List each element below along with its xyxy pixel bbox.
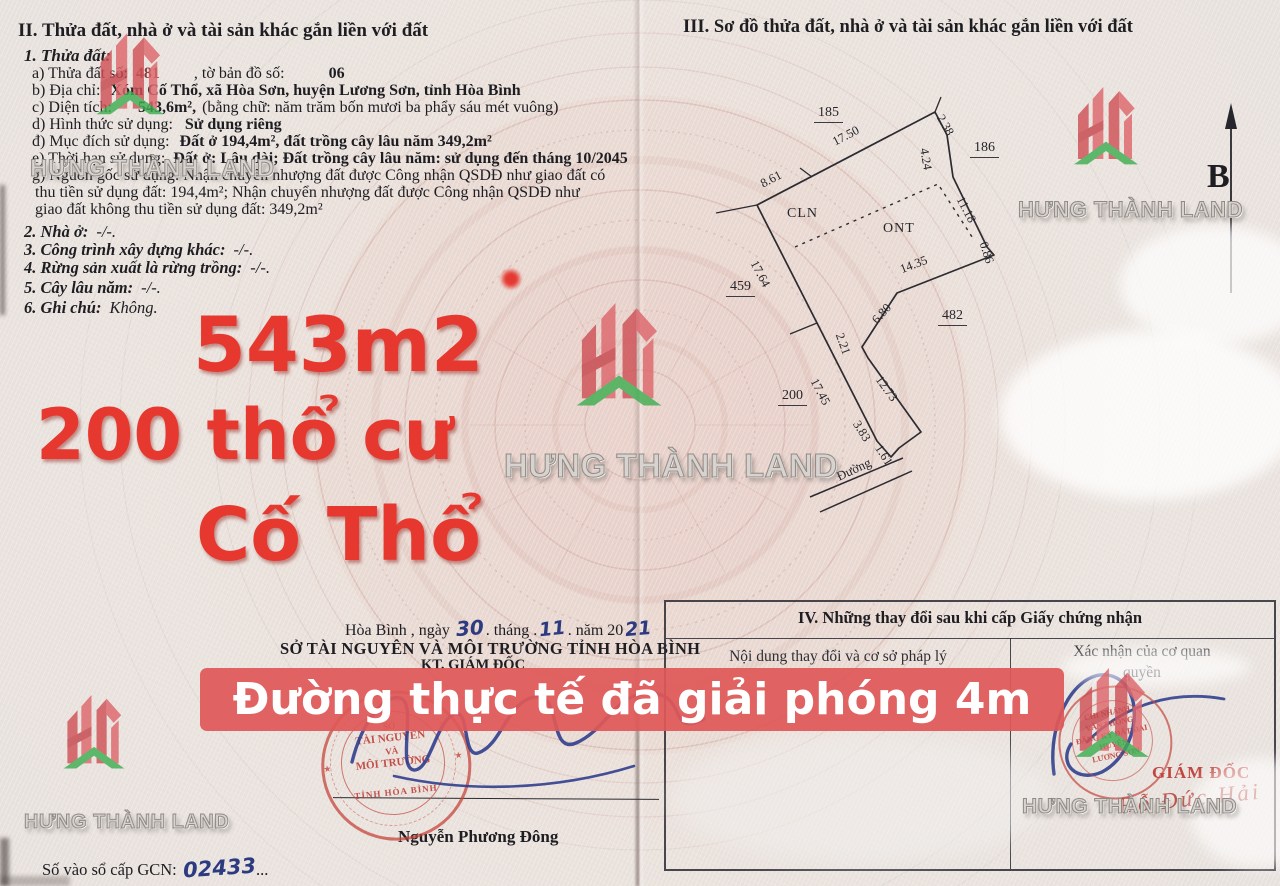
serial-suffix: ... xyxy=(256,860,268,879)
zone-label-cln: CLN xyxy=(787,206,818,222)
photo-edge-mark xyxy=(0,185,5,315)
stamp-star-left-icon: ★ xyxy=(323,764,332,776)
other-construction-value: -/-. xyxy=(234,240,254,259)
blur-patch xyxy=(672,733,1052,863)
stamp-star-right-icon: ★ xyxy=(454,750,463,762)
brand-name: HƯNG THÀNH LAND xyxy=(504,447,838,485)
use-origin-text2: thu tiền sử dụng đất: 194,4m²; Nhận chuy… xyxy=(35,184,580,201)
handwritten-year: 21 xyxy=(624,617,652,641)
brand-name: HƯNG THÀNH LAND xyxy=(24,811,229,834)
brand-name: HƯNG THÀNH LAND xyxy=(30,155,275,183)
neighbor-parcel-482: 482 xyxy=(938,308,967,326)
handwritten-month: 11 xyxy=(538,617,567,642)
house-value: -/-. xyxy=(96,222,116,241)
brand-building-icon xyxy=(1066,80,1146,174)
table-iv-col1-header: Nội dung thay đổi và cơ sở pháp lý xyxy=(666,648,1010,666)
brand-building-icon xyxy=(88,26,172,124)
house-label: 2. Nhà ở: xyxy=(24,222,88,241)
perennial-line: 5. Cây lâu năm:-/-. xyxy=(24,278,161,298)
serial-line: Số vào sổ cấp GCN: 02433... xyxy=(42,856,268,880)
overlay-residential-text: 200 thổ cư xyxy=(36,394,454,476)
handwritten-day: 30 xyxy=(455,615,484,641)
brand-building-icon xyxy=(56,688,132,778)
section3-title: III. Sơ đồ thửa đất, nhà ở và tài sản kh… xyxy=(683,17,1133,38)
perennial-value: -/-. xyxy=(141,278,161,297)
watermark-top-left: HƯNG THÀNH LAND xyxy=(30,26,275,183)
red-dot-mark xyxy=(500,268,522,290)
watermark-bottom-left: HƯNG THÀNH LAND xyxy=(24,688,229,834)
perennial-label: 5. Cây lâu năm: xyxy=(24,278,133,297)
use-origin-line3: giao đất không thu tiền sử dụng đất: 349… xyxy=(35,201,323,219)
notes-label: 6. Ghi chú: xyxy=(24,298,101,317)
table-iv-title: IV. Những thay đổi sau khi cấp Giấy chứn… xyxy=(666,608,1274,628)
zone-label-ont: ONT xyxy=(883,221,915,237)
serial-label: Số vào sổ cấp GCN: xyxy=(42,860,177,879)
house-line: 2. Nhà ở:-/-. xyxy=(24,222,116,242)
date-infix2: . năm 20 xyxy=(568,622,624,639)
overlay-area-text: 543m2 xyxy=(193,300,484,389)
brand-name: HƯNG THÀNH LAND xyxy=(1022,795,1237,819)
neighbor-parcel-186: 186 xyxy=(970,140,999,158)
place-date-line: Hòa Bình , ngày 30. tháng .11. năm 2021 xyxy=(345,616,652,640)
watermark-top-right: HƯNG THÀNH LAND xyxy=(1018,80,1243,223)
blur-patch xyxy=(1000,330,1280,500)
overlay-hamlet-text: Cố Thổ xyxy=(196,492,481,578)
handwritten-serial: 02433 xyxy=(182,853,257,882)
table-iv-header-divider xyxy=(666,638,1274,639)
other-construction-line: 3. Công trình xây dựng khác:-/-. xyxy=(24,240,253,260)
map-sheet-value: 06 xyxy=(329,65,345,82)
issuing-authority: SỞ TÀI NGUYÊN VÀ MÔI TRƯỜNG TỈNH HÒA BÌN… xyxy=(280,639,700,659)
notes-value: Không. xyxy=(109,298,157,317)
watermark-center: HƯNG THÀNH LAND xyxy=(504,294,838,485)
use-origin-line2: thu tiền sử dụng đất: 194,4m²; Nhận chuy… xyxy=(35,184,580,202)
forest-line: 4. Rừng sản xuất là rừng trồng:-/-. xyxy=(24,258,270,278)
date-infix1: . tháng . xyxy=(486,622,538,639)
overlay-banner-text: Đường thực tế đã giải phóng 4m xyxy=(233,674,1032,725)
brand-name: HƯNG THÀNH LAND xyxy=(1018,197,1243,223)
neighbor-parcel-185: 185 xyxy=(814,105,843,123)
brand-building-icon xyxy=(566,294,672,418)
land-certificate-photo: II. Thửa đất, nhà ở và tài sản khác gắn … xyxy=(0,0,1280,886)
brand-building-icon xyxy=(1066,660,1158,768)
place-date-prefix: Hòa Bình , ngày xyxy=(345,622,450,639)
forest-value: -/-. xyxy=(250,258,270,277)
use-origin-text3: giao đất không thu tiền sử dụng đất: 349… xyxy=(35,201,323,218)
forest-label: 4. Rừng sản xuất là rừng trồng: xyxy=(24,258,242,277)
notes-line: 6. Ghi chú:Không. xyxy=(24,298,158,318)
other-construction-label: 3. Công trình xây dựng khác: xyxy=(24,240,226,259)
overlay-banner: Đường thực tế đã giải phóng 4m xyxy=(200,668,1064,731)
